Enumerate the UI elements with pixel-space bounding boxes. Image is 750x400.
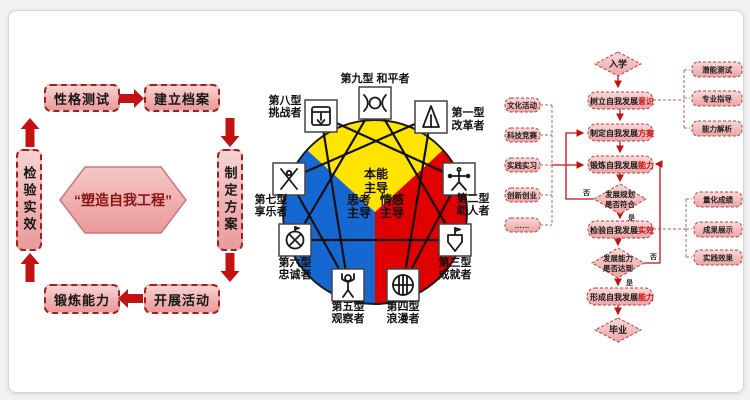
type-1-icon — [415, 101, 447, 133]
svg-text:助人者: 助人者 — [457, 203, 490, 217]
svg-text:浪漫者: 浪漫者 — [387, 311, 420, 325]
flow-no-label: 否 — [582, 189, 590, 197]
flow-start-diamond: 入学 — [595, 52, 641, 76]
svg-text:实践实习: 实践实习 — [507, 160, 537, 170]
svg-text:……: …… — [515, 221, 530, 230]
screenshot-canvas: 性格测试 建立档案 制定方案 开展活动 锻炼能力 检验实效 “塑造自我工程” — [0, 0, 750, 400]
cycle-arrow-down-icon — [221, 253, 240, 282]
type-2-icon — [443, 163, 475, 195]
type-2-label: 第二型 — [457, 191, 490, 205]
svg-text:忠诚者: 忠诚者 — [279, 267, 312, 281]
type-3-icon — [439, 224, 471, 256]
flow-support-boxes-top: 潜能测试 专业指导 能力解析 — [692, 62, 742, 136]
flow-support-boxes-mid: 量化成绩 成果展示 实践效果 — [694, 192, 742, 265]
svg-text:检验自我发展: 检验自我发展 — [590, 225, 638, 235]
cycle-center-hexagon: “塑造自我工程” — [60, 167, 186, 233]
cycle-arrow-left-icon — [118, 289, 143, 308]
type-7-label: 第七型 — [255, 192, 288, 206]
svg-text:文化活动: 文化活动 — [507, 100, 537, 110]
flow-end-label: 毕业 — [609, 324, 627, 335]
flow-decision-plan-fit: 发展 规划 是否符合 — [594, 184, 646, 214]
flow-no-label: 否 — [649, 253, 657, 261]
svg-text:实践效果: 实践效果 — [703, 253, 733, 263]
svg-text:树立自我发展: 树立自我发展 — [590, 96, 638, 106]
svg-text:主导: 主导 — [347, 205, 371, 220]
instinct-label: 本能 — [364, 166, 388, 181]
svg-text:成果展示: 成果展示 — [703, 225, 733, 235]
type-1-label: 第一型 — [452, 105, 485, 119]
diagrams-svg: “塑造自我工程” — [0, 0, 750, 400]
cycle-arrow-up-icon — [21, 253, 40, 282]
svg-text:能力: 能力 — [618, 253, 633, 263]
svg-text:创新创业: 创新创业 — [506, 190, 537, 200]
cycle-arrow-right-icon — [119, 89, 144, 108]
type-8-label: 第八型 — [269, 93, 302, 107]
cycle-arrow-up-icon — [21, 118, 40, 147]
flow-decision-ability-reached: 发展 能力 是否达到 — [592, 248, 644, 278]
type-7-icon — [273, 163, 305, 195]
svg-text:锻炼自我发展: 锻炼自我发展 — [590, 160, 638, 170]
flow-end-diamond: 毕业 — [595, 318, 641, 342]
svg-text:是否符合: 是否符合 — [604, 199, 635, 209]
flow-yes-label: 是 — [627, 213, 636, 222]
cycle-arrow-down-icon — [221, 118, 240, 147]
type-9-label: 第九型 和平者 — [340, 71, 409, 85]
svg-text:能力: 能力 — [638, 160, 654, 170]
svg-text:方案: 方案 — [638, 128, 655, 138]
svg-text:能力: 能力 — [638, 292, 654, 302]
svg-text:实效: 实效 — [638, 225, 654, 235]
cycle-center-title: “塑造自我工程” — [74, 192, 172, 208]
svg-text:意识: 意识 — [638, 96, 654, 106]
feeling-label: 情感 — [380, 192, 404, 207]
svg-text:发展: 发展 — [604, 189, 620, 199]
svg-text:规划: 规划 — [620, 189, 635, 199]
svg-text:制定自我发展: 制定自我发展 — [590, 128, 638, 138]
type-8-icon — [305, 100, 337, 132]
svg-text:量化成绩: 量化成绩 — [703, 195, 733, 205]
svg-text:潜能测试: 潜能测试 — [702, 65, 732, 75]
svg-text:发展: 发展 — [602, 253, 618, 263]
flow-start-label: 入学 — [608, 58, 627, 69]
type-5-icon — [332, 269, 364, 301]
svg-text:专业指导: 专业指导 — [702, 94, 732, 104]
flow-yes-label: 是 — [625, 278, 634, 287]
svg-text:是否达到: 是否达到 — [602, 263, 633, 273]
svg-text:能力解析: 能力解析 — [702, 124, 732, 134]
svg-text:形成自我发展: 形成自我发展 — [590, 292, 638, 302]
svg-text:观察者: 观察者 — [332, 311, 365, 325]
svg-text:成就者: 成就者 — [439, 267, 472, 281]
type-3-label: 第三型 — [439, 255, 472, 269]
svg-text:改革者: 改革者 — [452, 118, 485, 132]
type-5-label: 第五型 — [332, 299, 365, 313]
svg-text:主导: 主导 — [380, 205, 404, 220]
type-4-label: 第四型 — [387, 299, 420, 313]
type-6-icon — [279, 224, 311, 256]
flow-no-loop-2 — [644, 164, 660, 263]
svg-text:享乐者: 享乐者 — [255, 204, 288, 218]
flow-activity-boxes: 文化活动 科技竞赛 实践实习 创新创业 …… — [505, 98, 540, 232]
thinking-label: 思考 — [347, 192, 371, 207]
type-6-label: 第六型 — [279, 255, 312, 269]
type-9-icon — [359, 87, 391, 119]
type-4-icon — [387, 269, 419, 301]
svg-text:挑战者: 挑战者 — [269, 105, 302, 119]
svg-text:科技竞赛: 科技竞赛 — [507, 130, 537, 140]
